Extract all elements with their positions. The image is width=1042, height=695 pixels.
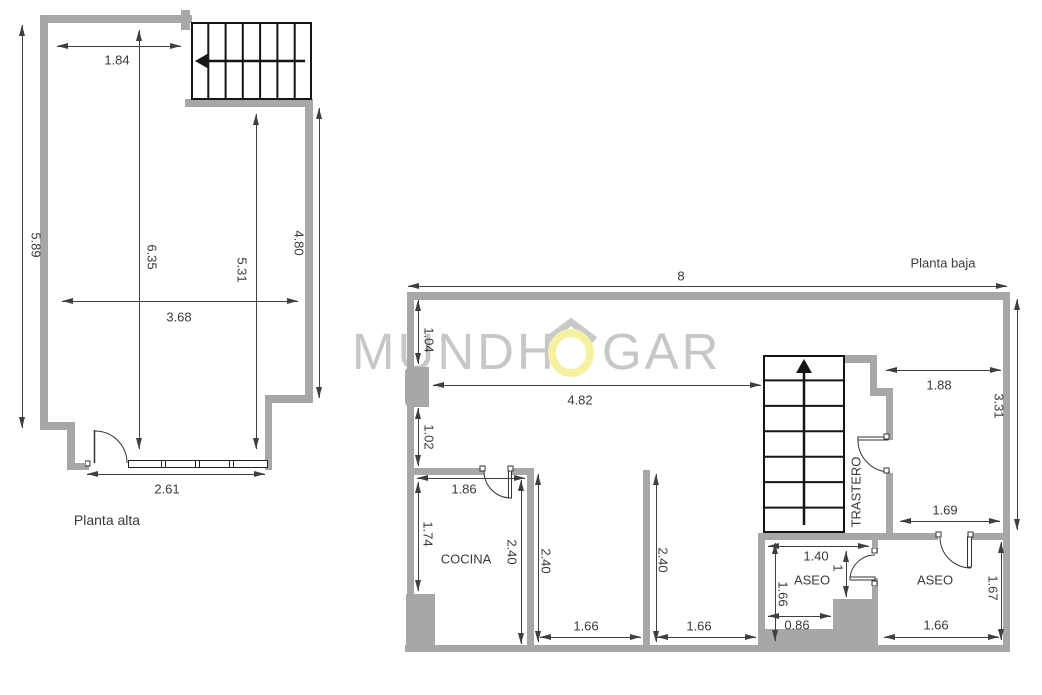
pb-dim-line-right-upper bbox=[1017, 299, 1018, 530]
pa-dim-line-right bbox=[319, 108, 320, 398]
pb-dim-label-aseo-l-door: 1 bbox=[831, 564, 846, 571]
pb-dim-label-aseo-r-top: 1.69 bbox=[932, 503, 957, 518]
room-label-aseo-left: ASEO bbox=[794, 573, 830, 588]
pa-window-mullion bbox=[161, 461, 166, 467]
pb-dim-label-aseo-l-left: 1.66 bbox=[776, 581, 791, 606]
pa-wall-top bbox=[40, 15, 192, 23]
pa-dim-label-right: 4.80 bbox=[292, 230, 307, 255]
pb-dim-label-room2-depth: 2.40 bbox=[539, 548, 554, 573]
pb-dim-label-left-upper: 1.04 bbox=[422, 327, 437, 352]
pb-dim-line-left-upper bbox=[418, 300, 419, 364]
pb-dim-label-aseo-r-right: 1.67 bbox=[986, 575, 1001, 600]
floorplan-canvas: MUNDH GAR 1.84 5.8 bbox=[0, 0, 1042, 695]
pa-window-mullion bbox=[229, 461, 234, 467]
pb-dim-label-aseo-l-step: 0.86 bbox=[784, 618, 809, 633]
pb-dim-line-room2-width bbox=[540, 637, 641, 638]
pa-dim-label-inner-right: 5.31 bbox=[235, 257, 250, 282]
pa-wall-left bbox=[40, 15, 48, 430]
pb-dim-line-aseo-l-top bbox=[768, 546, 869, 547]
pa-dim-label-left: 5.89 bbox=[29, 232, 44, 257]
pb-aseo-wall-top-left bbox=[758, 533, 938, 540]
pb-dim-label-room2-width: 1.66 bbox=[573, 619, 598, 634]
pa-wall-right-lower bbox=[265, 395, 272, 470]
pb-dim-line-total-top bbox=[408, 286, 1007, 287]
pb-title: Planta baja bbox=[910, 256, 975, 271]
pa-dim-line-width bbox=[62, 301, 298, 302]
pb-dim-line-room3-width bbox=[657, 637, 756, 638]
pb-wall-left-upper bbox=[407, 292, 414, 372]
room-label-cocina: COCINA bbox=[441, 552, 492, 567]
pb-dim-line-nook-width bbox=[886, 370, 1001, 371]
pb-dim-label-cocina-depth: 2.40 bbox=[505, 539, 520, 564]
pb-wall-right bbox=[1003, 292, 1010, 652]
pb-wall-bottom bbox=[405, 645, 1010, 652]
pb-dim-line-aseo-r-right bbox=[1001, 542, 1002, 640]
pa-wall-right-step bbox=[265, 395, 313, 403]
pb-trastero-wall-lower bbox=[886, 473, 893, 537]
pb-dim-line-left-lower bbox=[418, 408, 419, 466]
pa-dim-label-top: 1.84 bbox=[104, 53, 129, 68]
pb-dim-label-right-upper: 3.31 bbox=[992, 393, 1007, 418]
pa-window bbox=[128, 460, 268, 468]
pb-partition-wall bbox=[643, 470, 650, 652]
pb-dim-label-cocina-width: 1.86 bbox=[451, 482, 476, 497]
pb-cocina-door bbox=[478, 464, 535, 502]
pa-dim-line-bottom bbox=[87, 474, 265, 475]
pa-wall-stub bbox=[181, 10, 190, 30]
pb-staircase bbox=[763, 355, 845, 533]
pb-dim-line-cocina-depth bbox=[521, 480, 522, 644]
pb-dim-line-aseo-r-top bbox=[900, 521, 1000, 522]
pa-dim-line-left bbox=[22, 25, 23, 428]
pa-dim-label-middle: 6.35 bbox=[145, 244, 160, 269]
room-label-trastero: TRASTERO bbox=[849, 457, 864, 528]
pa-wall-under-stairs bbox=[185, 99, 313, 107]
pa-dim-label-bottom: 2.61 bbox=[154, 482, 179, 497]
pa-dim-line-top bbox=[57, 46, 181, 47]
pb-dim-line-aseo-l-door bbox=[846, 551, 847, 597]
pb-dim-label-room3-depth: 2.40 bbox=[656, 547, 671, 572]
pb-pillar-bottom bbox=[406, 594, 435, 651]
watermark-house-o-icon bbox=[544, 316, 598, 378]
pb-aseo-left-door bbox=[846, 548, 880, 586]
pb-aseo-right-door bbox=[934, 530, 978, 572]
pb-dim-label-aseo-r-bottom: 1.66 bbox=[923, 618, 948, 633]
watermark-suffix: GAR bbox=[602, 323, 722, 380]
pb-dim-label-cocina-left: 1.74 bbox=[421, 521, 436, 546]
pb-wall-left-lower bbox=[407, 404, 414, 594]
pb-dim-line-hall-width bbox=[433, 385, 761, 386]
pb-dim-label-left-lower: 1.02 bbox=[422, 424, 437, 449]
watermark-logo: MUNDH bbox=[352, 326, 557, 377]
pb-dim-label-total-top: 8 bbox=[677, 269, 684, 284]
pb-dim-line-cocina-left bbox=[418, 482, 419, 591]
room-label-aseo-right: ASEO bbox=[917, 573, 953, 588]
pa-dim-line-middle bbox=[139, 30, 140, 449]
pb-dim-line-aseo-r-bottom bbox=[884, 637, 999, 638]
pb-dim-label-nook-width: 1.88 bbox=[926, 378, 951, 393]
pa-dim-line-inner-right bbox=[256, 114, 257, 449]
pa-staircase bbox=[191, 22, 312, 100]
pb-wall-top bbox=[407, 292, 1010, 300]
pb-dim-label-room3-width: 1.66 bbox=[686, 619, 711, 634]
watermark-prefix: MUNDH bbox=[352, 323, 557, 380]
pa-dim-label-width: 3.68 bbox=[166, 310, 191, 325]
pb-dim-label-hall-width: 4.82 bbox=[567, 393, 592, 408]
pa-title: Planta alta bbox=[74, 512, 140, 528]
pa-window-mullion bbox=[195, 461, 200, 467]
watermark-logo-suffix: GAR bbox=[602, 326, 722, 377]
pb-pillar-top bbox=[405, 367, 429, 407]
pb-dim-line-cocina-width bbox=[417, 478, 525, 479]
pb-dim-label-aseo-l-top: 1.40 bbox=[803, 549, 828, 564]
